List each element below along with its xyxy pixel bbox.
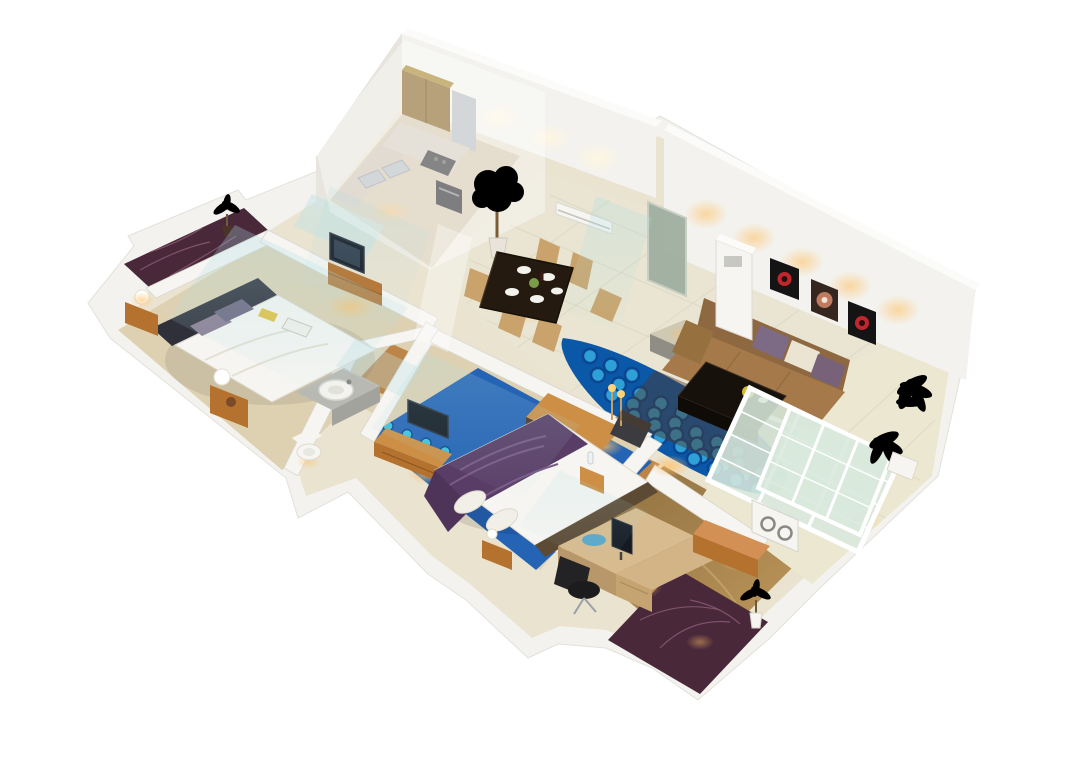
- plate: [517, 266, 531, 274]
- wall-spotlight-warm: [684, 199, 728, 229]
- faucet: [347, 380, 352, 385]
- wall-spotlight-warm: [876, 295, 920, 325]
- toilet-seat: [303, 448, 315, 456]
- artwork-3-center: [859, 320, 865, 326]
- wall-spotlight: [574, 143, 622, 173]
- white-vase: [750, 613, 762, 628]
- clock: [226, 397, 236, 407]
- water-bottle: [588, 452, 593, 464]
- tower-ac-grille: [724, 256, 742, 267]
- floorplan-svg: [0, 0, 1080, 764]
- tower-ac-body: [716, 240, 752, 340]
- entry-door-recess: [648, 202, 686, 296]
- plate: [530, 295, 544, 303]
- lamp-ball-2: [214, 369, 230, 385]
- plate: [505, 288, 519, 296]
- centerpiece: [529, 278, 539, 288]
- wine-bottle: [540, 272, 544, 281]
- tower-ac-unit: [716, 234, 756, 340]
- floorplan-render: [0, 0, 1080, 764]
- bed2-lamp: [487, 529, 497, 539]
- candle-flame: [617, 390, 625, 398]
- candle-flame: [608, 384, 616, 392]
- chair-seat: [568, 581, 600, 599]
- artwork-1-center: [782, 276, 788, 282]
- plate: [551, 288, 563, 295]
- artwork-2-floral-core: [822, 297, 828, 303]
